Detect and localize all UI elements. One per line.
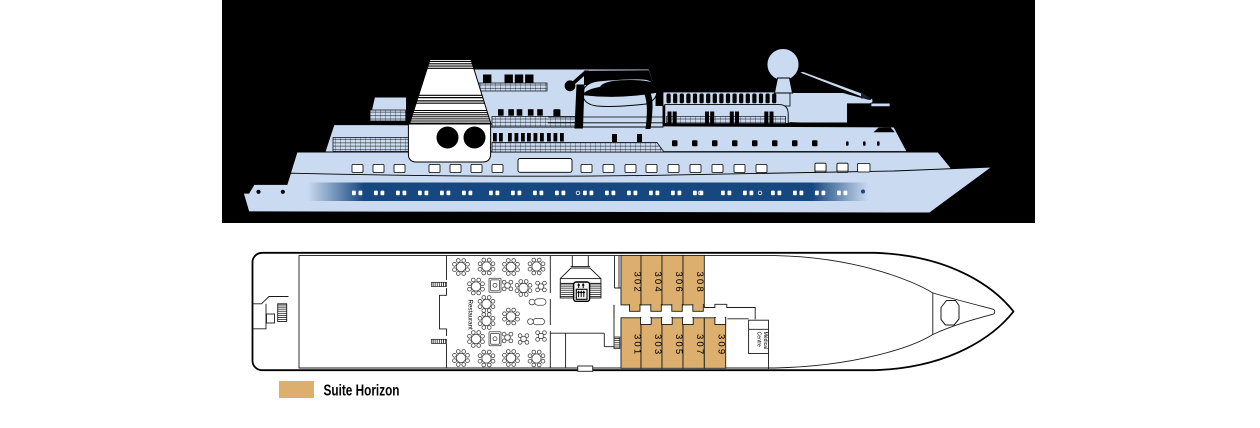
- svg-text:302: 302: [631, 272, 642, 294]
- svg-text:Médical: Médical: [762, 332, 768, 350]
- svg-text:307: 307: [694, 334, 705, 356]
- svg-text:308: 308: [694, 272, 705, 294]
- svg-text:Centre: Centre: [756, 332, 762, 347]
- svg-text:303: 303: [652, 334, 663, 356]
- svg-text:Suite Horizon: Suite Horizon: [324, 383, 400, 400]
- svg-text:305: 305: [673, 334, 684, 356]
- svg-text:309: 309: [715, 334, 726, 356]
- svg-text:306: 306: [673, 272, 684, 294]
- svg-text:301: 301: [631, 334, 642, 356]
- svg-text:304: 304: [652, 272, 663, 294]
- svg-text:Restaurant: Restaurant: [467, 300, 474, 331]
